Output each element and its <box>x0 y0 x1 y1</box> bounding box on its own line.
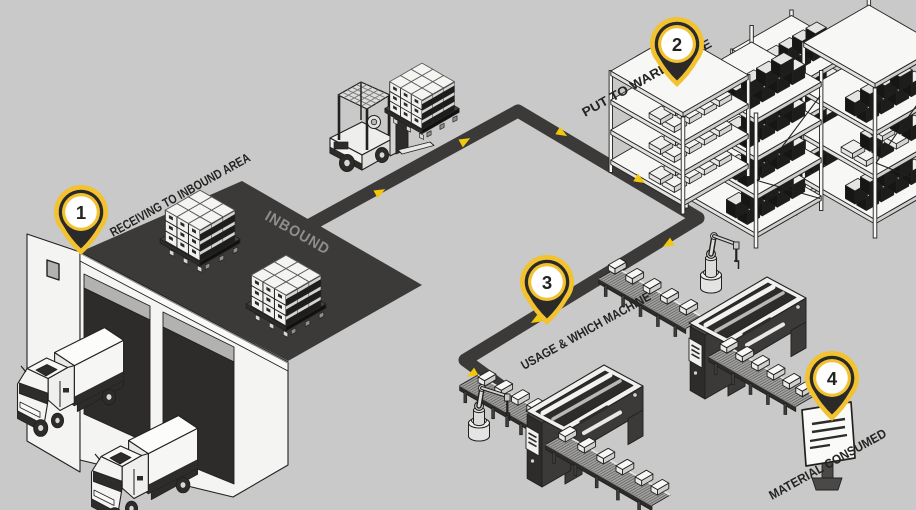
svg-text:1: 1 <box>76 202 86 223</box>
svg-text:2: 2 <box>672 34 682 55</box>
svg-text:4: 4 <box>827 368 838 389</box>
svg-text:3: 3 <box>542 272 552 293</box>
